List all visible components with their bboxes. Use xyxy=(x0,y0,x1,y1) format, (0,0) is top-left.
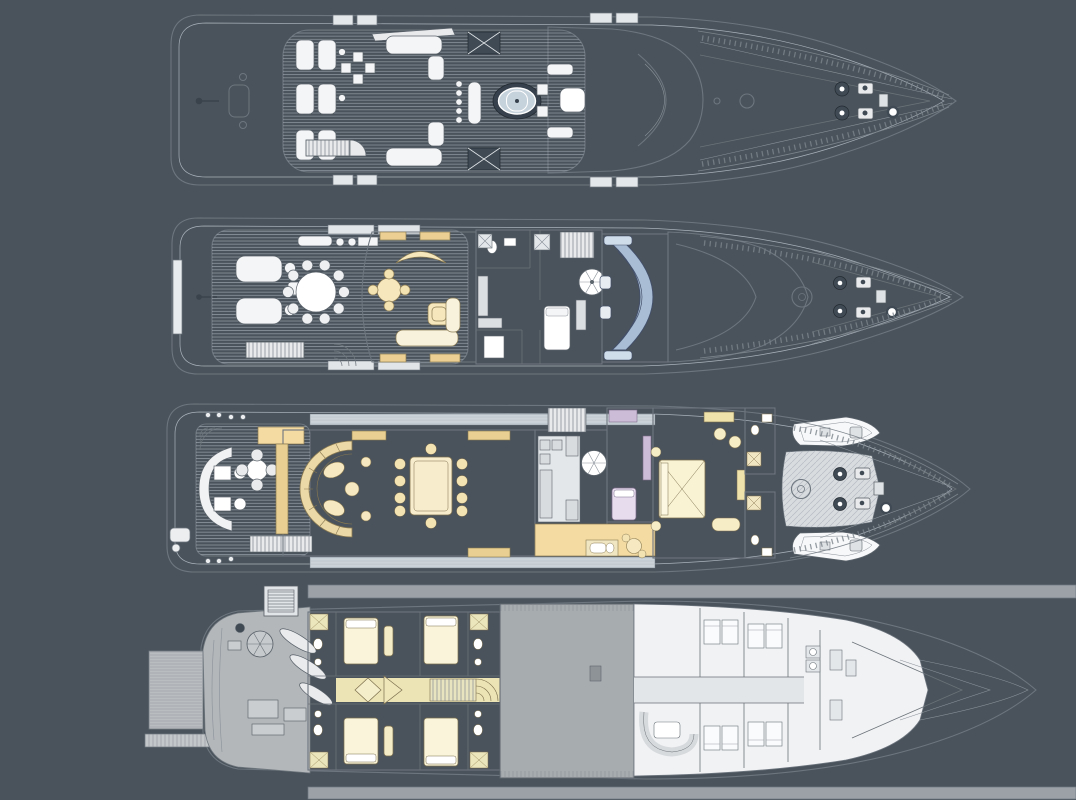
arc-sofa xyxy=(300,441,371,537)
stairs-up xyxy=(548,408,586,432)
guest-accommodation xyxy=(308,612,500,770)
lower-deck-plan xyxy=(140,583,1076,800)
sun-deck-plan xyxy=(165,8,975,198)
flag-staff xyxy=(196,294,202,300)
master-stateroom xyxy=(651,408,745,558)
coffee-table xyxy=(214,497,231,511)
bow-capstan xyxy=(740,94,754,108)
bridge-deck-plan xyxy=(165,210,980,395)
bar-stool xyxy=(456,81,462,87)
bar-stool xyxy=(456,117,462,123)
aft-stairs xyxy=(306,140,366,156)
captain-cabin xyxy=(544,300,586,350)
lounge-chair xyxy=(714,428,726,440)
dining-table xyxy=(296,272,336,312)
spiral-stairs xyxy=(582,451,607,476)
aft-stairs xyxy=(250,536,312,552)
aft-fittings xyxy=(196,74,249,129)
exhaust-vent xyxy=(264,586,298,616)
portuguese-bridge xyxy=(668,232,808,362)
desk xyxy=(643,436,651,480)
dining-table xyxy=(410,457,452,515)
lobby-corridor xyxy=(535,524,655,558)
bar-stool xyxy=(456,90,462,96)
mess-table xyxy=(654,722,680,738)
galley xyxy=(538,436,580,522)
coffee-table xyxy=(214,466,231,480)
bar-stool xyxy=(456,108,462,114)
mid-accommodation xyxy=(476,230,605,364)
bar-counter xyxy=(468,82,481,124)
crew-corridor xyxy=(634,677,804,703)
formal-dining xyxy=(395,444,468,529)
wheelhouse xyxy=(600,234,668,362)
pantry xyxy=(478,276,504,358)
side-table xyxy=(321,459,347,481)
desk xyxy=(576,300,586,330)
vanity xyxy=(704,412,734,422)
main-salon xyxy=(276,430,535,557)
bow-equipment xyxy=(700,236,952,358)
yacht-deck-plans xyxy=(0,0,1076,800)
crew-quarters xyxy=(634,604,1028,776)
king-bed xyxy=(651,447,705,531)
round-table xyxy=(247,460,268,481)
spa-pool xyxy=(493,83,541,119)
helm-console xyxy=(612,244,653,350)
stairs-up xyxy=(560,232,594,258)
foredeck xyxy=(782,417,958,561)
deck-hatch xyxy=(229,85,249,117)
nightstand xyxy=(651,447,661,457)
bench xyxy=(384,726,393,756)
side-table xyxy=(321,497,347,519)
anchor-windlass xyxy=(835,82,898,120)
boarding-platform xyxy=(173,260,217,334)
windscreen xyxy=(638,54,666,146)
games-table xyxy=(377,278,401,302)
bench xyxy=(384,626,393,656)
lounge-sofa xyxy=(396,330,458,346)
nightstand xyxy=(651,521,661,531)
engine-room xyxy=(500,604,634,778)
bar-stool xyxy=(456,99,462,105)
day-head xyxy=(478,234,516,254)
his-hers-bathrooms xyxy=(745,408,775,558)
flag-staff xyxy=(196,98,202,104)
main-deck-plan xyxy=(160,398,990,583)
sofa xyxy=(712,518,740,531)
galley-area xyxy=(535,408,655,558)
lounge-chair xyxy=(729,436,741,448)
mast-base xyxy=(792,287,812,307)
garage xyxy=(203,607,335,773)
spiral-stairs xyxy=(247,631,273,657)
bar xyxy=(456,81,481,124)
